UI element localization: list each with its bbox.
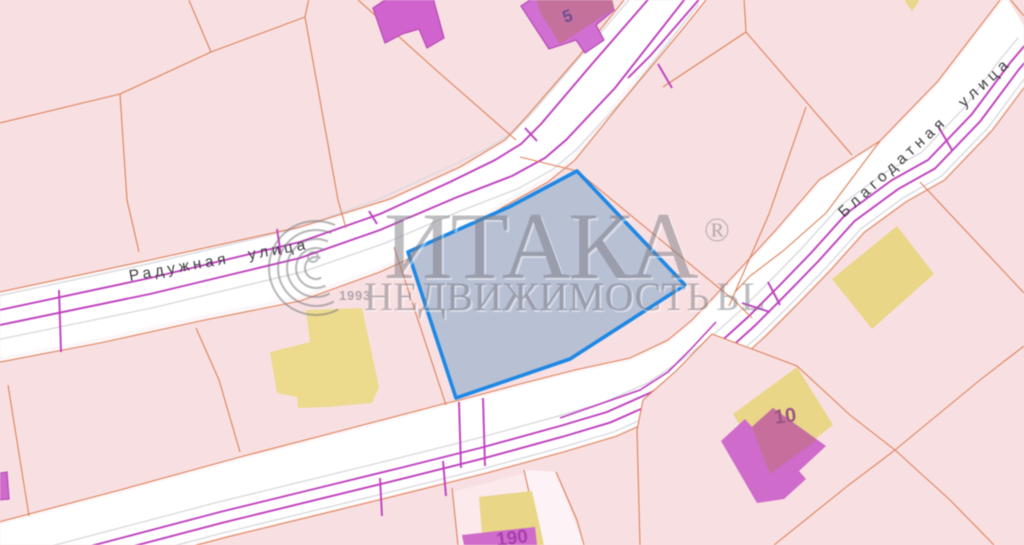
svg-text:10: 10 xyxy=(773,404,798,429)
svg-text:НЕДВИЖИМОСТЬ: НЕДВИЖИМОСТЬ xyxy=(364,274,710,319)
svg-text:190: 190 xyxy=(495,526,529,545)
svg-text:®: ® xyxy=(704,212,730,249)
svg-text:ЬL: ЬL xyxy=(716,274,767,319)
